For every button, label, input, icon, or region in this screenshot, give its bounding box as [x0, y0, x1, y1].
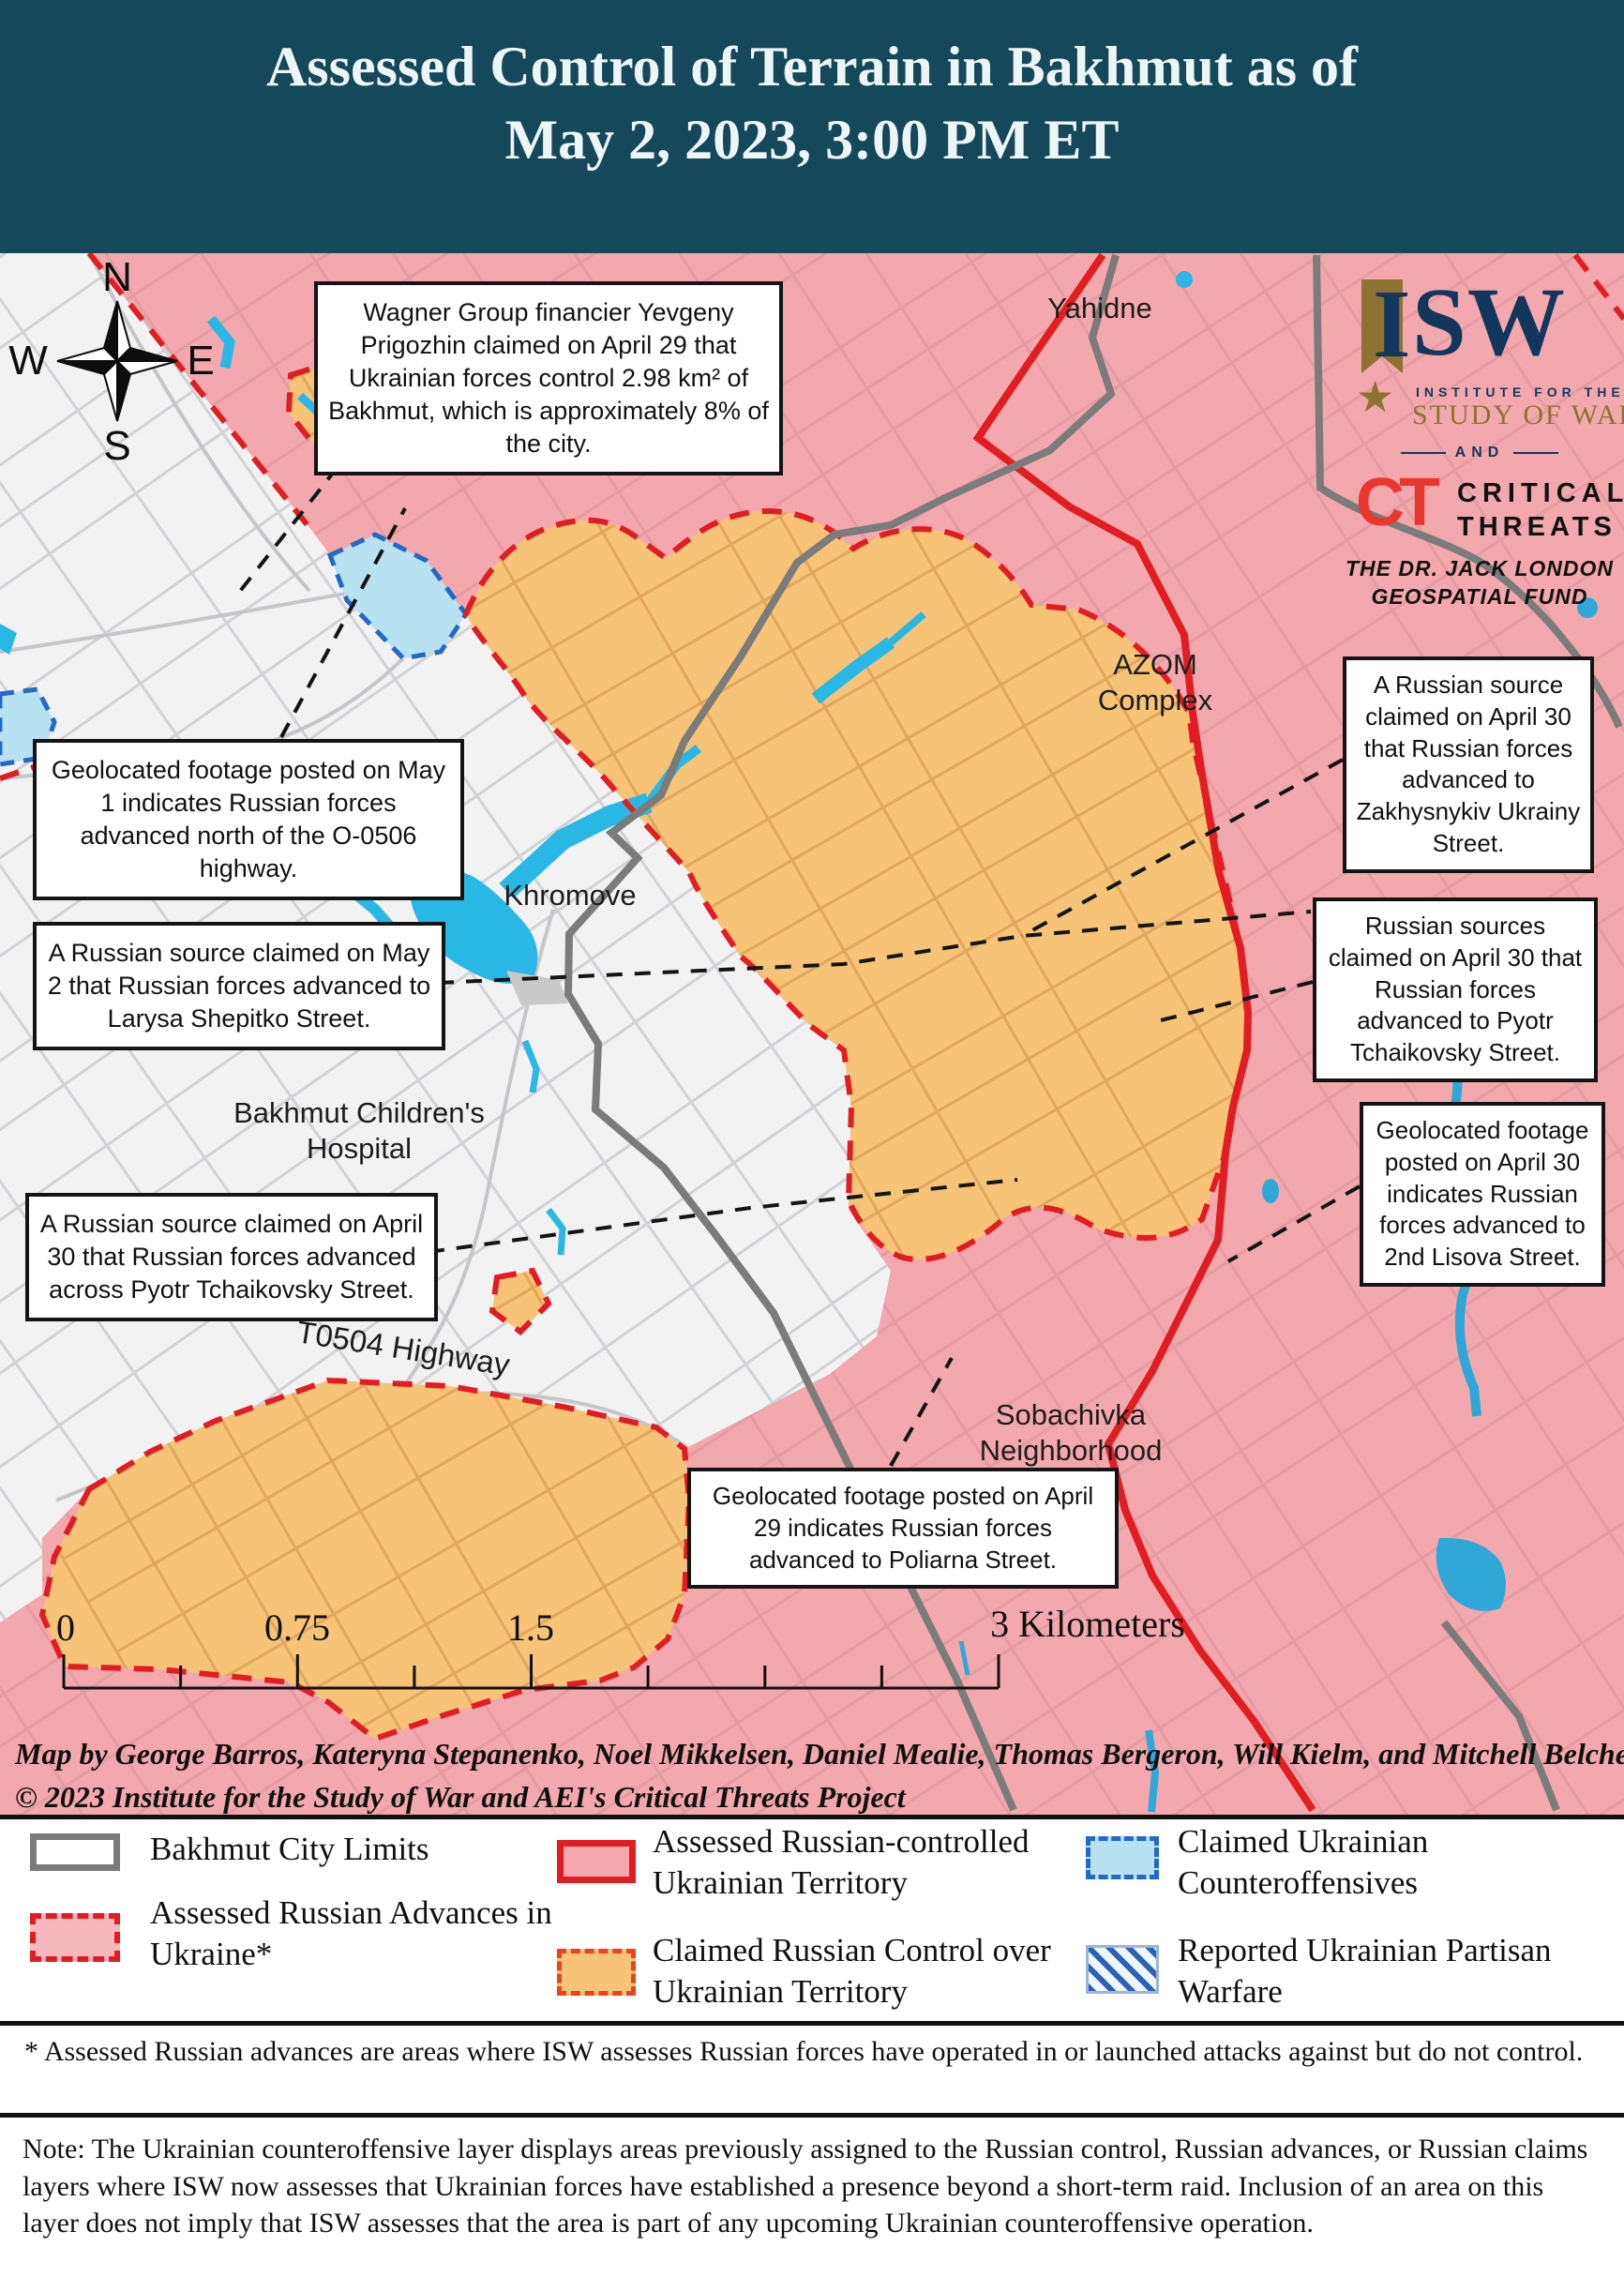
legend-swatch-russian-controlled: [557, 1840, 636, 1883]
compass-west-label: W: [8, 338, 48, 385]
compass-north-label: N: [102, 254, 132, 301]
label-sobachivka: Sobachivka Neighborhood: [944, 1397, 1197, 1469]
legend-label-claimed-russian-l2: Ukrainian Territory: [653, 1973, 908, 2010]
isw-study-of-war-text: STUDY OF WAR: [1412, 400, 1624, 431]
label-khromove: Khromove: [504, 878, 636, 913]
critical-threats-icon: CT: [1356, 473, 1435, 534]
page-title-line2: May 2, 2023, 3:00 PM ET: [0, 103, 1624, 176]
isw-institute-text: INSTITUTE FOR THE: [1416, 385, 1624, 400]
callout-wagner-claim: Wagner Group financier Yevgeny Prigozhin…: [314, 281, 783, 475]
compass-east-label: E: [187, 338, 214, 385]
legend-label-russian-advances-l2: Ukraine*: [150, 1936, 272, 1972]
scale-15: 1.5: [507, 1606, 554, 1650]
legend-label-counteroffensives-l2: Counteroffensives: [1178, 1864, 1418, 1901]
callout-larysa-shepitko: A Russian source claimed on May 2 that R…: [33, 922, 445, 1050]
legend-label-partisan-warfare-l2: Warfare: [1178, 1973, 1283, 2010]
legend-label-russian-controlled: Assessed Russian-controlled Ukrainian Te…: [653, 1821, 1029, 1904]
ct-threats-text: THREATS: [1457, 512, 1616, 543]
label-yahidne: Yahidne: [1047, 291, 1151, 326]
isw-wordmark-i: I: [1373, 276, 1410, 373]
legend-label-city-limits: Bakhmut City Limits: [150, 1829, 429, 1870]
callout-may1-advance: Geolocated footage posted on May 1 indic…: [33, 739, 464, 900]
compass-south-label: S: [103, 423, 130, 470]
ct-critical-text: CRITICAL: [1457, 478, 1624, 509]
footnote-counteroffensive-note: Note: The Ukrainian counteroffensive lay…: [0, 2118, 1624, 2277]
logo-and-text: AND: [1339, 445, 1620, 461]
callout-pyotr-to: Russian sources claimed on April 30 that…: [1313, 897, 1598, 1082]
legend-label-russian-advances: Assessed Russian Advances in Ukraine*: [150, 1892, 552, 1975]
scale-3km: 3 Kilometers: [990, 1602, 1185, 1646]
scale-0: 0: [56, 1606, 75, 1650]
legend-swatch-city-limits: [30, 1833, 120, 1871]
legend-label-claimed-russian-l1: Claimed Russian Control over: [653, 1932, 1051, 1968]
legend-label-partisan-warfare: Reported Ukrainian Partisan Warfare: [1178, 1930, 1552, 2013]
legend-swatch-counteroffensives: [1086, 1836, 1159, 1879]
legend-label-russian-controlled-l2: Ukrainian Territory: [653, 1864, 908, 1901]
legend-label-russian-controlled-l1: Assessed Russian-controlled: [653, 1823, 1029, 1860]
legend-label-claimed-russian: Claimed Russian Control over Ukrainian T…: [653, 1930, 1051, 2013]
callout-poliarna: Geolocated footage posted on April 29 in…: [687, 1468, 1119, 1589]
callout-pyotr-across: A Russian source claimed on April 30 tha…: [25, 1193, 438, 1321]
callout-zakhysnykiv: A Russian source claimed on April 30 tha…: [1343, 656, 1594, 873]
title-banner: Assessed Control of Terrain in Bakhmut a…: [0, 0, 1624, 253]
star-icon: ★: [1356, 371, 1394, 422]
legend-swatch-claimed-russian: [557, 1949, 636, 1996]
legend-swatch-russian-advances: [30, 1913, 120, 1962]
isw-bakhmut-map-page: Assessed Control of Terrain in Bakhmut a…: [0, 0, 1624, 2277]
isw-wordmark: SW: [1412, 274, 1566, 371]
footnote-advances: * Assessed Russian advances are areas wh…: [0, 2026, 1624, 2118]
map-credits-line1: Map by George Barros, Kateryna Stepanenk…: [15, 1737, 1624, 1772]
logo-block: I SW ★ INSTITUTE FOR THE STUDY OF WAR AN…: [1339, 274, 1620, 611]
geospatial-fund-text: THE DR. JACK LONDON GEOSPATIAL FUND: [1339, 555, 1620, 611]
legend-label-russian-advances-l1: Assessed Russian Advances in: [150, 1894, 552, 1931]
legend: Bakhmut City Limits Assessed Russian Adv…: [0, 1815, 1624, 2026]
legend-label-counteroffensives-l1: Claimed Ukrainian: [1178, 1823, 1428, 1860]
callout-2nd-lisova: Geolocated footage posted on April 30 in…: [1360, 1102, 1605, 1287]
page-title-line1: Assessed Control of Terrain in Bakhmut a…: [0, 0, 1624, 103]
label-children-hospital: Bakhmut Children's Hospital: [214, 1095, 504, 1167]
legend-label-partisan-warfare-l1: Reported Ukrainian Partisan: [1178, 1932, 1552, 1968]
legend-swatch-partisan-warfare: [1086, 1945, 1159, 1994]
map-credits-line2: © 2023 Institute for the Study of War an…: [15, 1780, 906, 1815]
scale-075: 0.75: [264, 1606, 330, 1650]
legend-label-counteroffensives: Claimed Ukrainian Counteroffensives: [1178, 1821, 1428, 1904]
label-azom-complex: AZOM Complex: [1075, 647, 1235, 718]
map-area: N W E S Yahidne AZOM Complex Khromove Ba…: [0, 253, 1624, 1815]
